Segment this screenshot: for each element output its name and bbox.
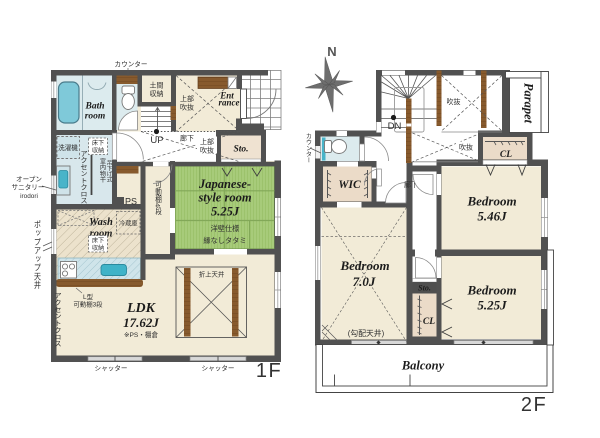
svg-text:可動棚3段: 可動棚3段 — [73, 300, 103, 309]
svg-text:irodori: irodori — [20, 193, 38, 200]
svg-text:Bedroom: Bedroom — [466, 283, 516, 298]
svg-text:吊下げ式: 吊下げ式 — [106, 160, 113, 182]
svg-text:N: N — [327, 44, 336, 59]
svg-text:収納: 収納 — [92, 146, 104, 154]
svg-text:ポップアップ天井: ポップアップ天井 — [34, 220, 43, 290]
svg-text:style room: style room — [197, 191, 251, 205]
svg-text:5.25J: 5.25J — [211, 205, 240, 219]
svg-text:CL: CL — [500, 150, 512, 160]
svg-text:サニタリー: サニタリー — [12, 183, 45, 192]
svg-text:吹抜: 吹抜 — [459, 143, 473, 152]
svg-text:Sto.: Sto. — [233, 145, 248, 155]
svg-text:1F: 1F — [256, 360, 282, 382]
svg-text:収納: 収納 — [92, 244, 104, 252]
svg-text:room: room — [85, 112, 106, 122]
svg-text:Balcony: Balcony — [401, 359, 445, 373]
svg-text:折上天井: 折上天井 — [199, 270, 225, 279]
svg-text:※PS・棚倉: ※PS・棚倉 — [124, 330, 159, 339]
svg-text:(勾配天井): (勾配天井) — [348, 328, 385, 338]
svg-text:アクセントクロス: アクセントクロス — [54, 292, 63, 347]
svg-text:rance: rance — [219, 98, 240, 108]
svg-text:Parapet: Parapet — [522, 83, 536, 124]
svg-text:5.46J: 5.46J — [477, 209, 507, 224]
svg-text:Bath: Bath — [84, 102, 104, 112]
svg-text:L型: L型 — [83, 292, 94, 301]
svg-text:PS: PS — [125, 197, 137, 207]
svg-text:床下: 床下 — [92, 237, 104, 245]
svg-text:Japanese-: Japanese- — [198, 177, 251, 191]
svg-text:土間: 土間 — [150, 81, 164, 90]
svg-text:5.25J: 5.25J — [477, 298, 507, 313]
svg-text:WIC: WIC — [338, 179, 361, 191]
svg-text:アクセントクロス: アクセントクロス — [80, 150, 89, 204]
svg-text:シャッター: シャッター — [202, 364, 235, 373]
svg-text:Wash: Wash — [89, 217, 113, 228]
svg-text:Sto.: Sto. — [418, 284, 431, 293]
svg-text:LDK: LDK — [126, 301, 157, 316]
svg-text:オープン: オープン — [16, 176, 42, 184]
svg-text:吹抜: 吹抜 — [180, 103, 194, 112]
svg-text:上部: 上部 — [200, 137, 214, 146]
svg-text:Bedroom: Bedroom — [466, 194, 516, 209]
svg-text:シャッター: シャッター — [95, 364, 128, 373]
svg-text:吹抜: 吹抜 — [447, 97, 461, 106]
svg-text:縁なしタタミ: 縁なしタタミ — [203, 236, 246, 245]
svg-text:DN: DN — [388, 121, 402, 132]
svg-text:洋壁仕様: 洋壁仕様 — [211, 224, 240, 233]
svg-text:17.62J: 17.62J — [123, 315, 159, 330]
svg-text:CL: CL — [423, 317, 435, 327]
svg-text:洗濯機: 洗濯機 — [58, 143, 78, 152]
svg-text:上部: 上部 — [180, 94, 194, 103]
svg-text:吹抜: 吹抜 — [200, 146, 214, 155]
svg-text:カウンター: カウンター — [115, 60, 148, 69]
svg-text:床下: 床下 — [92, 139, 104, 147]
svg-text:Bedroom: Bedroom — [339, 258, 389, 273]
svg-text:冷蔵庫: 冷蔵庫 — [119, 220, 138, 228]
svg-text:収納: 収納 — [150, 89, 164, 98]
svg-text:2F: 2F — [521, 394, 547, 416]
svg-text:7.0J: 7.0J — [353, 274, 376, 289]
svg-text:廊下: 廊下 — [180, 134, 194, 143]
